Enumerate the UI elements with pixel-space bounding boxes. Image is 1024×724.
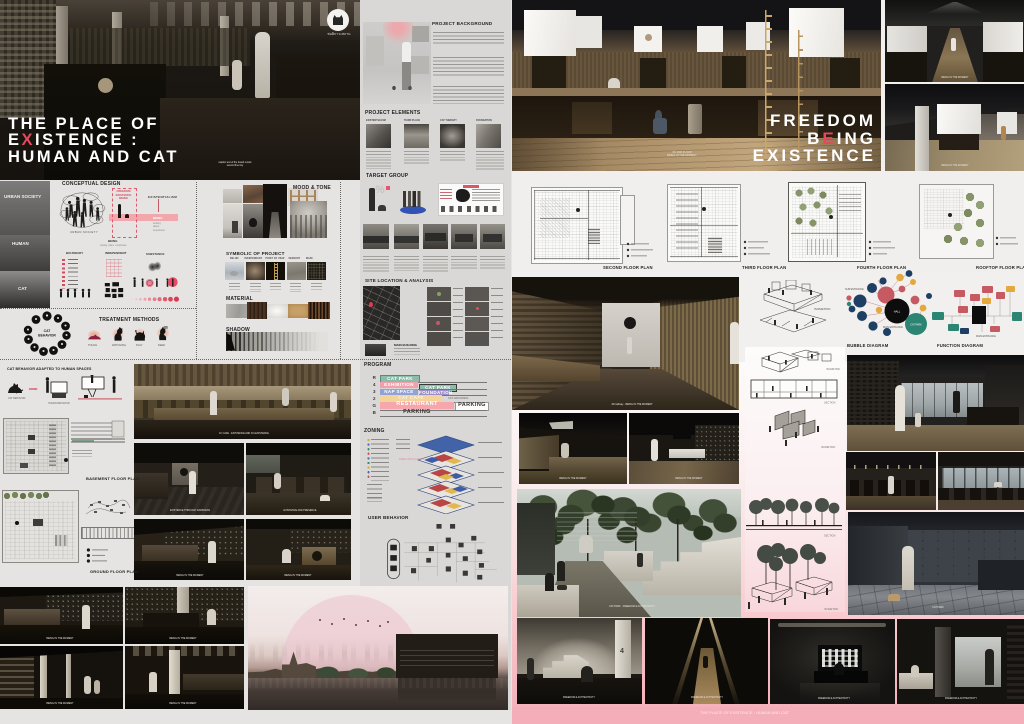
svg-text:BEHAVIOR: BEHAVIOR xyxy=(38,334,56,338)
svg-text:ISOMETRIC: ISOMETRIC xyxy=(814,307,832,311)
svg-text:MAIN ENTRANCE: MAIN ENTRANCE xyxy=(976,335,996,338)
svg-text:ISOMETRIC: ISOMETRIC xyxy=(821,445,836,449)
svg-text:ISOMETRIC: ISOMETRIC xyxy=(824,607,839,611)
svg-text:SUB ENTRANCE: SUB ENTRANCE xyxy=(845,288,864,291)
svg-text:HALL: HALL xyxy=(894,310,901,314)
svg-text:SECTION: SECTION xyxy=(824,401,836,405)
svg-text:MAIN ENTRANCE: MAIN ENTRANCE xyxy=(883,326,903,329)
svg-text:CAT PARK: CAT PARK xyxy=(910,324,922,327)
svg-text:CAT: CAT xyxy=(44,329,52,333)
svg-text:SECTION: SECTION xyxy=(824,534,836,538)
svg-text:ISOMETRIC: ISOMETRIC xyxy=(826,367,840,371)
